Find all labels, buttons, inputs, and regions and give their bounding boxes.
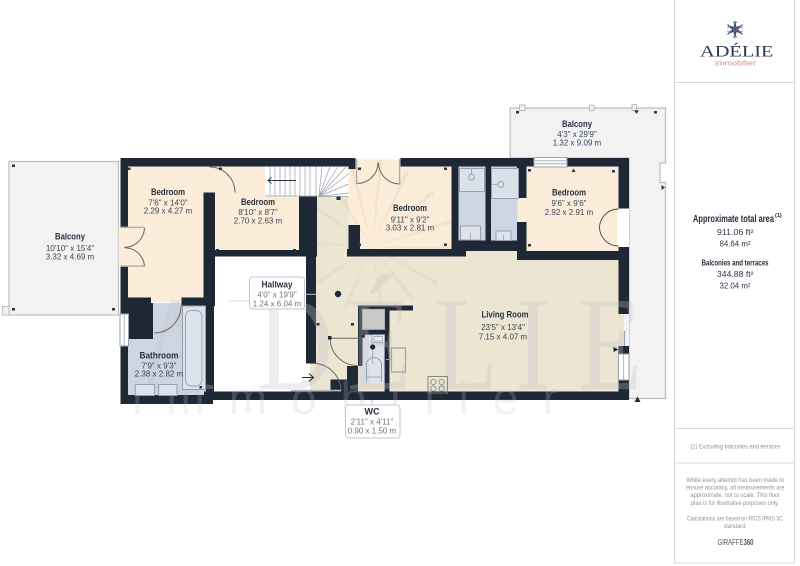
svg-text:0.90 x 1.50 m: 0.90 x 1.50 m xyxy=(348,427,397,436)
svg-text:While every attempt has been m: While every attempt has been made to xyxy=(687,477,785,484)
svg-text:E: E xyxy=(578,271,642,419)
svg-text:2'11" x 4'11": 2'11" x 4'11" xyxy=(351,418,394,427)
svg-text:Balcony: Balcony xyxy=(55,232,86,243)
svg-text:ensure accuracy, all measureme: ensure accuracy, all measurements are xyxy=(686,485,785,492)
svg-text:Balcony: Balcony xyxy=(562,119,593,130)
svg-text:23'5" x 13'4": 23'5" x 13'4" xyxy=(481,323,525,332)
svg-text:Bedroom: Bedroom xyxy=(552,188,586,199)
svg-text:Living Room: Living Room xyxy=(482,310,529,321)
svg-text:911.06 ft²: 911.06 ft² xyxy=(717,228,754,237)
svg-text:Bedroom: Bedroom xyxy=(151,187,185,198)
svg-text:WC: WC xyxy=(365,407,380,418)
svg-text:84.64 m²: 84.64 m² xyxy=(720,240,751,249)
svg-text:9'6" x 9'6": 9'6" x 9'6" xyxy=(552,199,587,208)
svg-text:7.15 x 4.07 m: 7.15 x 4.07 m xyxy=(479,333,528,342)
svg-text:GIRAFFE360: GIRAFFE360 xyxy=(718,538,754,547)
svg-text:Bedroom: Bedroom xyxy=(241,197,275,208)
svg-text:344.88 ft²: 344.88 ft² xyxy=(717,270,754,279)
svg-text:standard.: standard. xyxy=(724,523,747,530)
svg-text:2.70 x 2.63 m: 2.70 x 2.63 m xyxy=(234,217,283,226)
svg-text:1.24 x 6.04 m: 1.24 x 6.04 m xyxy=(253,299,302,308)
svg-text:3.32 x 4.69 m: 3.32 x 4.69 m xyxy=(46,253,95,262)
svg-text:Bedroom: Bedroom xyxy=(393,203,427,214)
svg-text:(1) Excluding balconies and te: (1) Excluding balconies and terraces xyxy=(691,444,781,451)
svg-text:32.04 m²: 32.04 m² xyxy=(720,282,751,291)
svg-text:Hallway: Hallway xyxy=(262,280,294,291)
svg-text:3.03 x 2.81 m: 3.03 x 2.81 m xyxy=(386,224,435,233)
svg-text:2.29 x 4.27 m: 2.29 x 4.27 m xyxy=(144,207,193,216)
svg-text:Approximate total area: Approximate total area xyxy=(693,214,774,225)
svg-text:approximate, not to scale. Thi: approximate, not to scale. This floor xyxy=(691,492,781,499)
svg-text:Bathroom: Bathroom xyxy=(140,351,179,362)
svg-text:(1): (1) xyxy=(775,213,782,219)
svg-text:2.92 x 2.91 m: 2.92 x 2.91 m xyxy=(545,208,594,217)
svg-text:immobilier: immobilier xyxy=(715,59,757,68)
svg-text:plan is for illustrative purpo: plan is for illustrative purposes only. xyxy=(691,500,779,507)
svg-text:1.32 x 9.09 m: 1.32 x 9.09 m xyxy=(553,139,602,148)
svg-text:Calculations are based on RICS: Calculations are based on RICS IPMS 3C xyxy=(687,516,783,523)
svg-text:Balconies and terraces: Balconies and terraces xyxy=(702,258,769,268)
svg-text:2.38 x 2.82 m: 2.38 x 2.82 m xyxy=(135,370,184,379)
svg-text:4'0" x 19'9": 4'0" x 19'9" xyxy=(257,291,297,300)
